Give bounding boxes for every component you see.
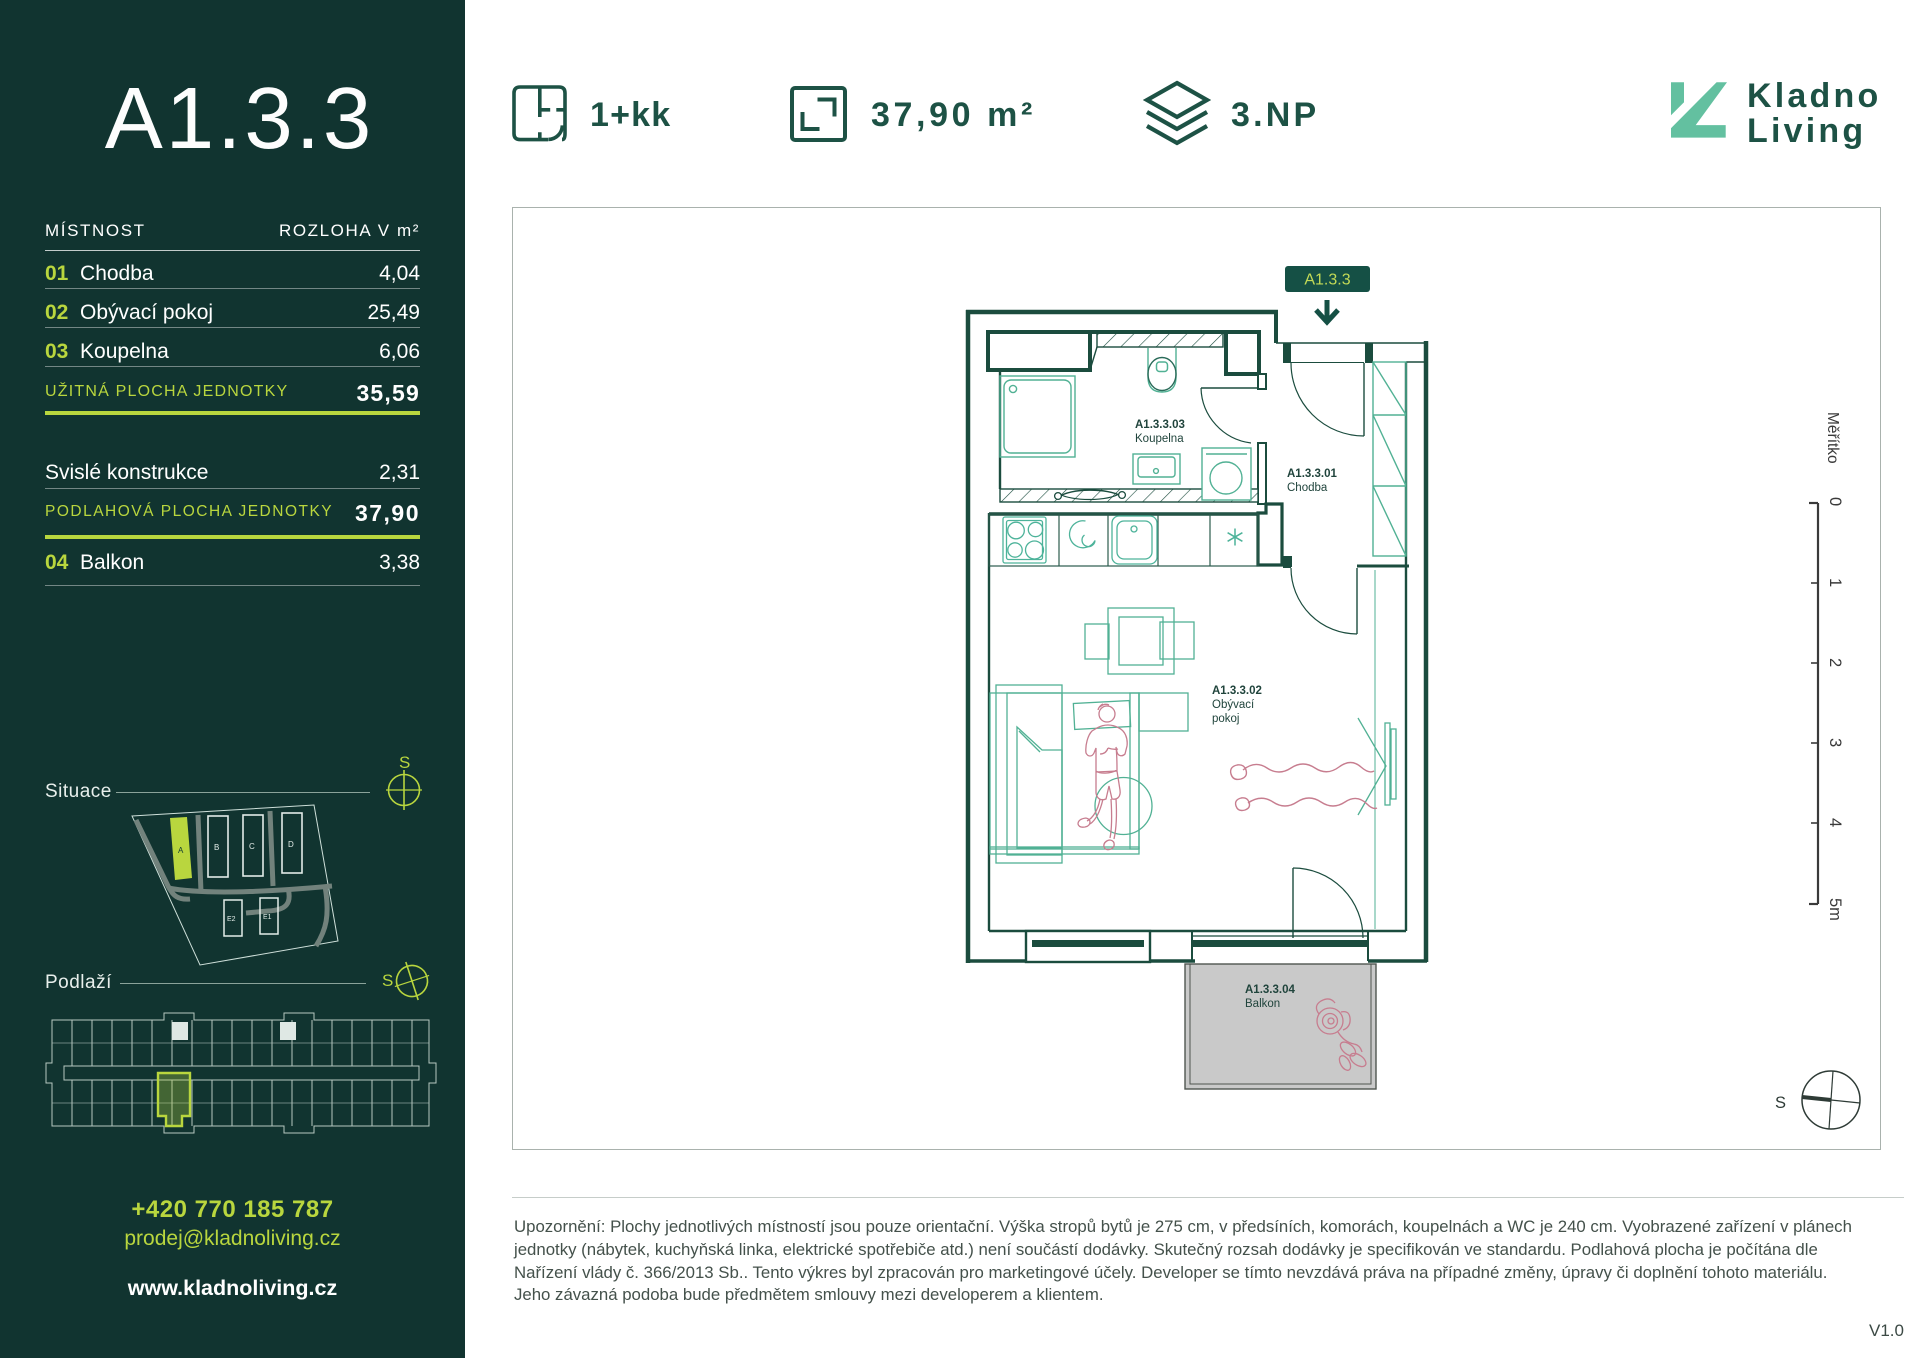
svg-text:A: A xyxy=(178,846,184,855)
svg-text:Měřítko: Měřítko xyxy=(1824,412,1841,464)
svg-text:C: C xyxy=(249,842,255,851)
svg-text:A1.3.3.01: A1.3.3.01 xyxy=(1287,468,1337,480)
svg-text:1: 1 xyxy=(1826,578,1844,587)
svg-text:A1.3.3.04: A1.3.3.04 xyxy=(1245,984,1295,996)
svg-text:Balkon: Balkon xyxy=(1245,998,1280,1010)
svg-text:A1.3.3: A1.3.3 xyxy=(1304,272,1350,289)
svg-text:S: S xyxy=(399,753,410,772)
svg-text:Obývací: Obývací xyxy=(1212,699,1255,711)
svg-text:S: S xyxy=(382,971,393,990)
svg-text:2: 2 xyxy=(1826,658,1844,667)
svg-text:4: 4 xyxy=(1826,818,1844,827)
svg-text:A1.3.3.03: A1.3.3.03 xyxy=(1135,419,1185,431)
svg-text:pokoj: pokoj xyxy=(1212,713,1240,725)
svg-text:Chodba: Chodba xyxy=(1287,482,1328,494)
svg-text:Koupelna: Koupelna xyxy=(1135,433,1184,445)
svg-text:3: 3 xyxy=(1826,738,1844,747)
svg-text:D: D xyxy=(288,840,294,849)
svg-text:E1: E1 xyxy=(263,914,272,921)
svg-text:E2: E2 xyxy=(227,916,236,923)
svg-text:A1.3.3.02: A1.3.3.02 xyxy=(1212,685,1262,697)
svg-text:5m: 5m xyxy=(1826,898,1844,921)
svg-text:0: 0 xyxy=(1826,497,1844,506)
svg-text:B: B xyxy=(214,843,219,852)
svg-text:S: S xyxy=(1775,1094,1786,1112)
